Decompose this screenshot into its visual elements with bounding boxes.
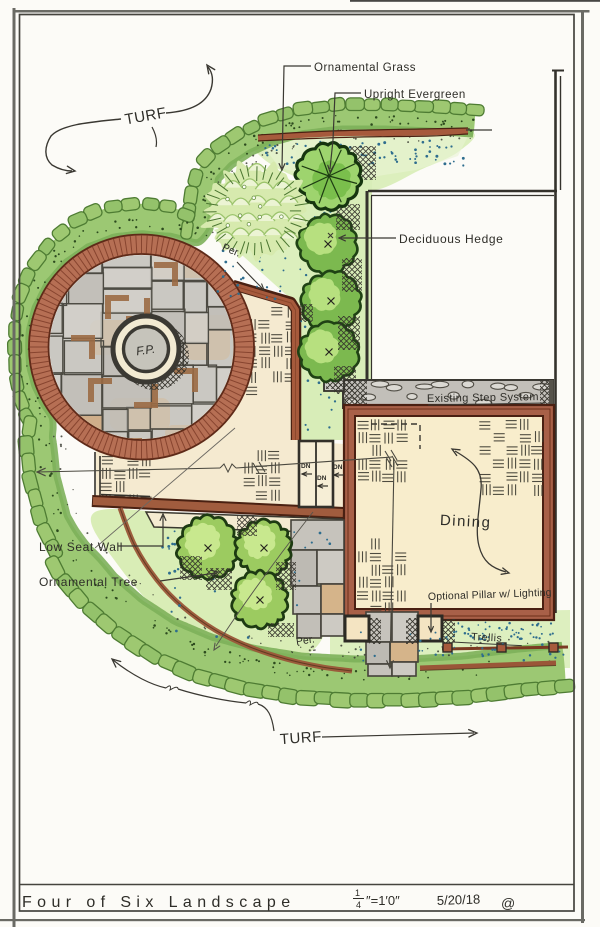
svg-text:Four of Six Landscape: Four of Six Landscape	[22, 894, 296, 911]
svg-text:DN: DN	[333, 464, 343, 471]
svg-text:@: @	[501, 895, 515, 911]
svg-text:5/20/18: 5/20/18	[437, 891, 481, 908]
svg-text:DN: DN	[317, 475, 327, 482]
svg-text:Ornamental Tree: Ornamental Tree	[39, 575, 138, 589]
svg-text:Low Seat Wall: Low Seat Wall	[39, 540, 123, 554]
svg-text:Upright Evergreen: Upright Evergreen	[364, 89, 466, 101]
svg-text:TURF: TURF	[279, 728, 322, 748]
svg-text:Ornamental Grass: Ornamental Grass	[314, 62, 416, 74]
svg-text:Dining: Dining	[440, 512, 492, 532]
svg-text:Deciduous Hedge: Deciduous Hedge	[399, 232, 503, 246]
svg-text:DN: DN	[301, 463, 311, 470]
svg-text:1: 1	[355, 888, 360, 898]
svg-text:Trellis: Trellis	[471, 631, 503, 645]
svg-text:4: 4	[356, 900, 361, 910]
svg-text:F.P.: F.P.	[135, 342, 156, 358]
svg-text:″=1′0″: ″=1′0″	[366, 893, 400, 908]
